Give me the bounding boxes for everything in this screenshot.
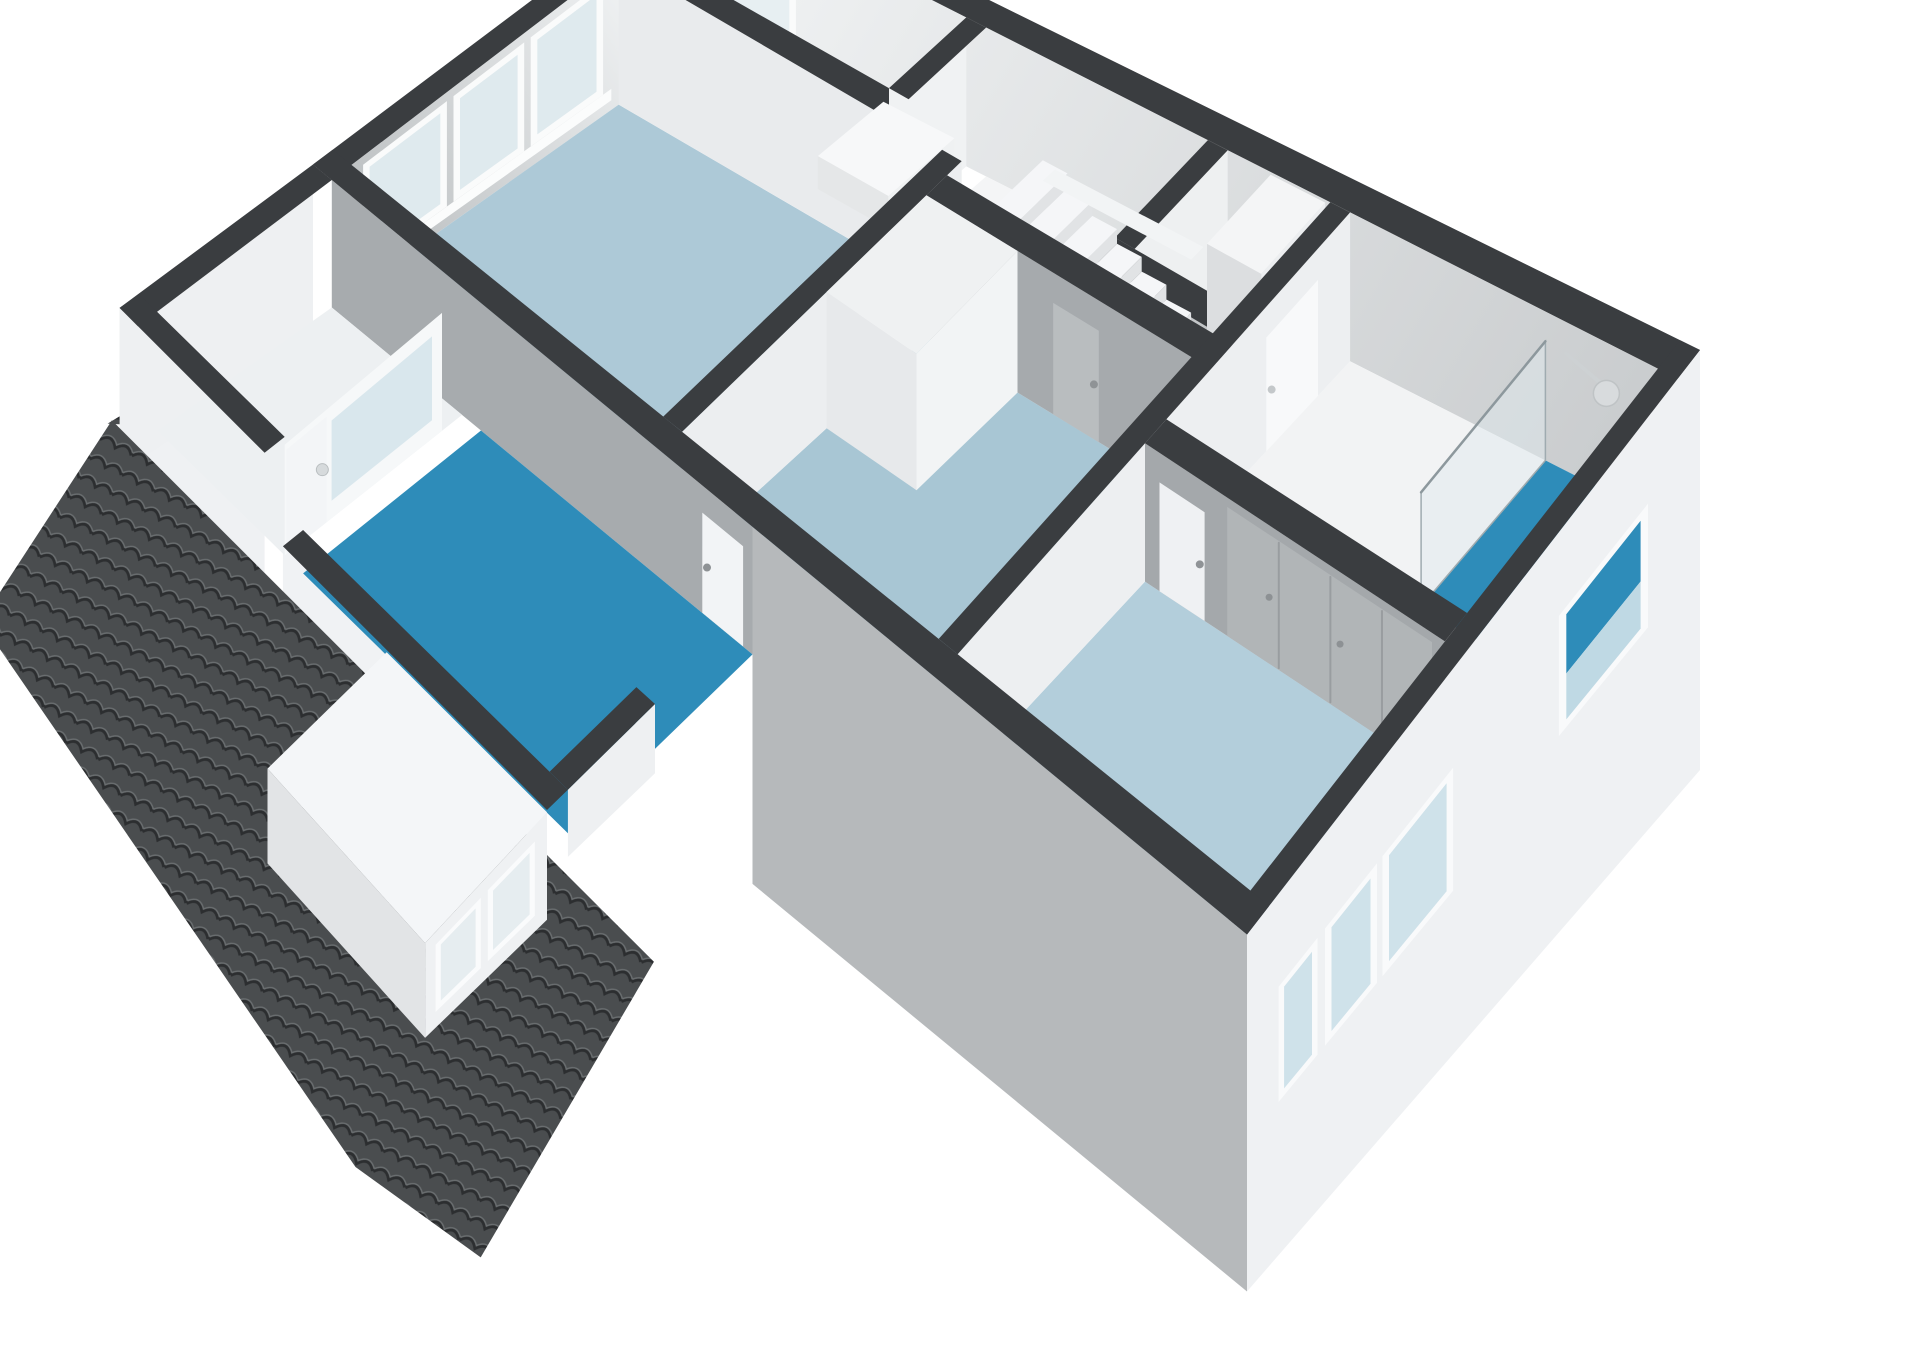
balcony-door-handle	[703, 564, 711, 572]
bedroom3-door-handle	[1196, 560, 1204, 568]
wardrobe-handle-1	[1266, 594, 1273, 601]
bedroom2-door-handle	[1090, 380, 1098, 388]
annex-door-knob	[316, 464, 328, 476]
floorplan-viewport	[0, 0, 1920, 1358]
shower-head	[1593, 380, 1619, 406]
floor-plan-3d-render	[0, 0, 1920, 1358]
bathroom-door-handle	[1268, 386, 1276, 394]
wardrobe-handle-2	[1337, 641, 1344, 648]
